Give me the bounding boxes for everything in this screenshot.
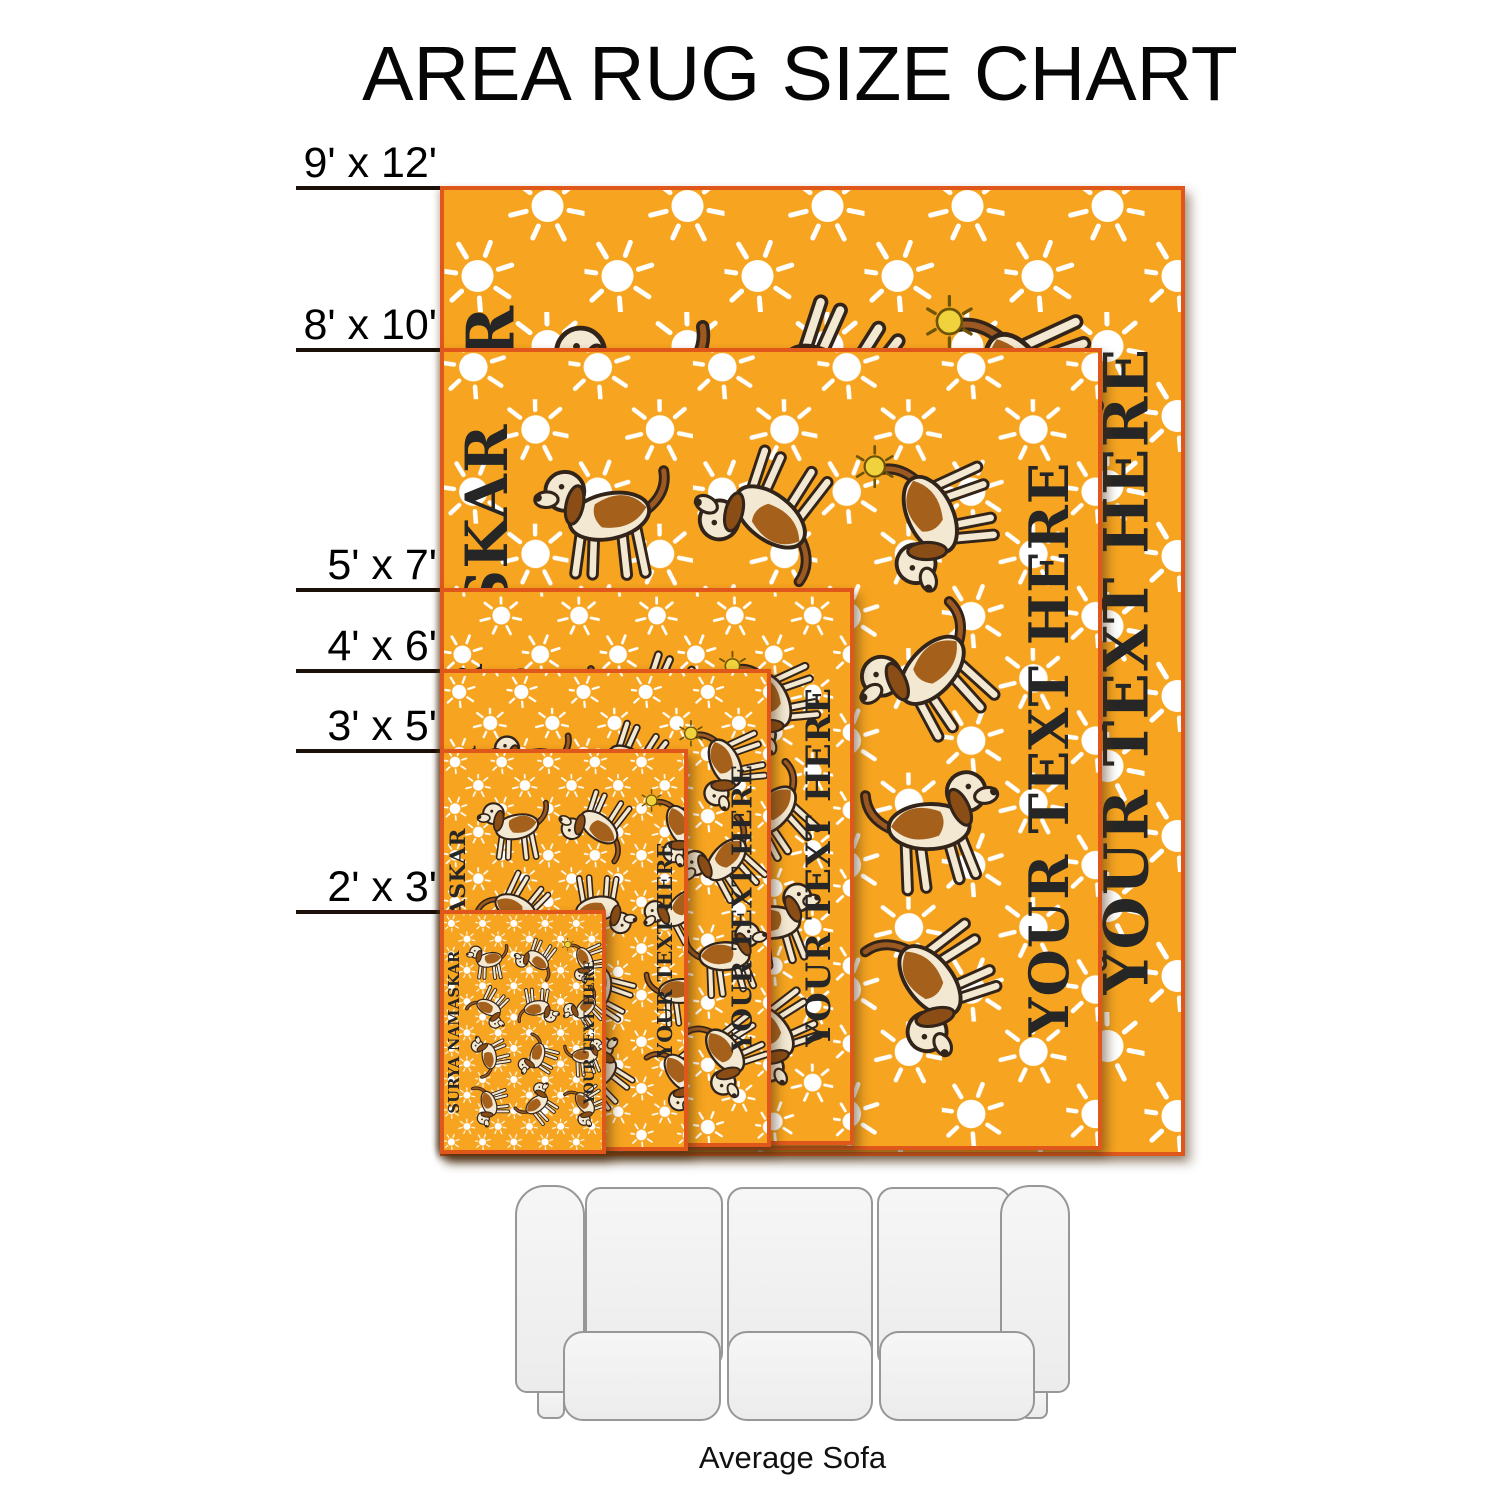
- rug-custom-text: YOUR TEXT HERE: [729, 673, 757, 1143]
- rug-custom-text: YOUR TEXT HERE: [1095, 190, 1159, 1152]
- rug-custom-text: YOUR TEXT HERE: [655, 753, 676, 1147]
- yoga-dog-figure: [527, 438, 688, 593]
- size-label-2x3: 2' x 3': [327, 865, 440, 910]
- yoga-dog-figure: [475, 785, 557, 867]
- size-marker-9x12: 9' x 12': [296, 128, 440, 190]
- rug-custom-text: YOUR TEXT HERE: [802, 592, 838, 1141]
- rug-2x3: SURYA NAMASKAR YOUR TEXT HERE: [440, 910, 606, 1154]
- rug-custom-text: YOUR TEXT HERE: [1021, 352, 1078, 1146]
- size-label-9x12: 9' x 12': [303, 141, 440, 186]
- yoga-dog-figure: [513, 1032, 561, 1080]
- yoga-dog-figure: [465, 984, 513, 1032]
- rug-pattern-title: SURYA NAMASKAR: [447, 914, 462, 1150]
- yoga-dog-figure: [465, 936, 513, 984]
- yoga-dog-figure: [465, 1032, 513, 1080]
- size-label-8x10: 8' x 10': [303, 303, 440, 348]
- sofa-illustration: [515, 1185, 1070, 1421]
- yoga-dog-figure: [557, 785, 639, 867]
- yoga-dog-grid: [462, 914, 582, 1150]
- size-marker-3x5: 3' x 5': [296, 691, 440, 753]
- yoga-dog-figure: [850, 594, 1011, 749]
- sofa-seat-cushion: [563, 1331, 721, 1421]
- size-marker-5x7: 5' x 7': [296, 530, 440, 592]
- size-label-4x6: 4' x 6': [327, 624, 440, 669]
- size-marker-4x6: 4' x 6': [296, 611, 440, 673]
- yoga-dog-figure: [688, 438, 849, 593]
- yoga-dog-figure: [465, 1080, 513, 1128]
- rug-design: SURYA NAMASKAR YOUR TEXT HERE: [444, 914, 602, 1150]
- yoga-dog-figure: [513, 936, 561, 984]
- yoga-dog-figure: [850, 749, 1011, 904]
- sofa-label: Average Sofa: [515, 1440, 1070, 1476]
- size-label-3x5: 3' x 5': [327, 704, 440, 749]
- yoga-dog-figure: [513, 984, 561, 1032]
- yoga-dog-figure: [850, 438, 1011, 593]
- sofa-seat-cushion: [879, 1331, 1035, 1421]
- yoga-dog-figure: [850, 904, 1011, 1059]
- yoga-dog-figure: [513, 1080, 561, 1128]
- size-marker-2x3: 2' x 3': [296, 852, 440, 914]
- rug-custom-text: YOUR TEXT HERE: [583, 914, 597, 1150]
- size-label-5x7: 5' x 7': [327, 543, 440, 588]
- size-marker-8x10: 8' x 10': [296, 290, 440, 352]
- sofa-seat-cushion: [727, 1331, 873, 1421]
- page-title: AREA RUG SIZE CHART: [250, 30, 1350, 119]
